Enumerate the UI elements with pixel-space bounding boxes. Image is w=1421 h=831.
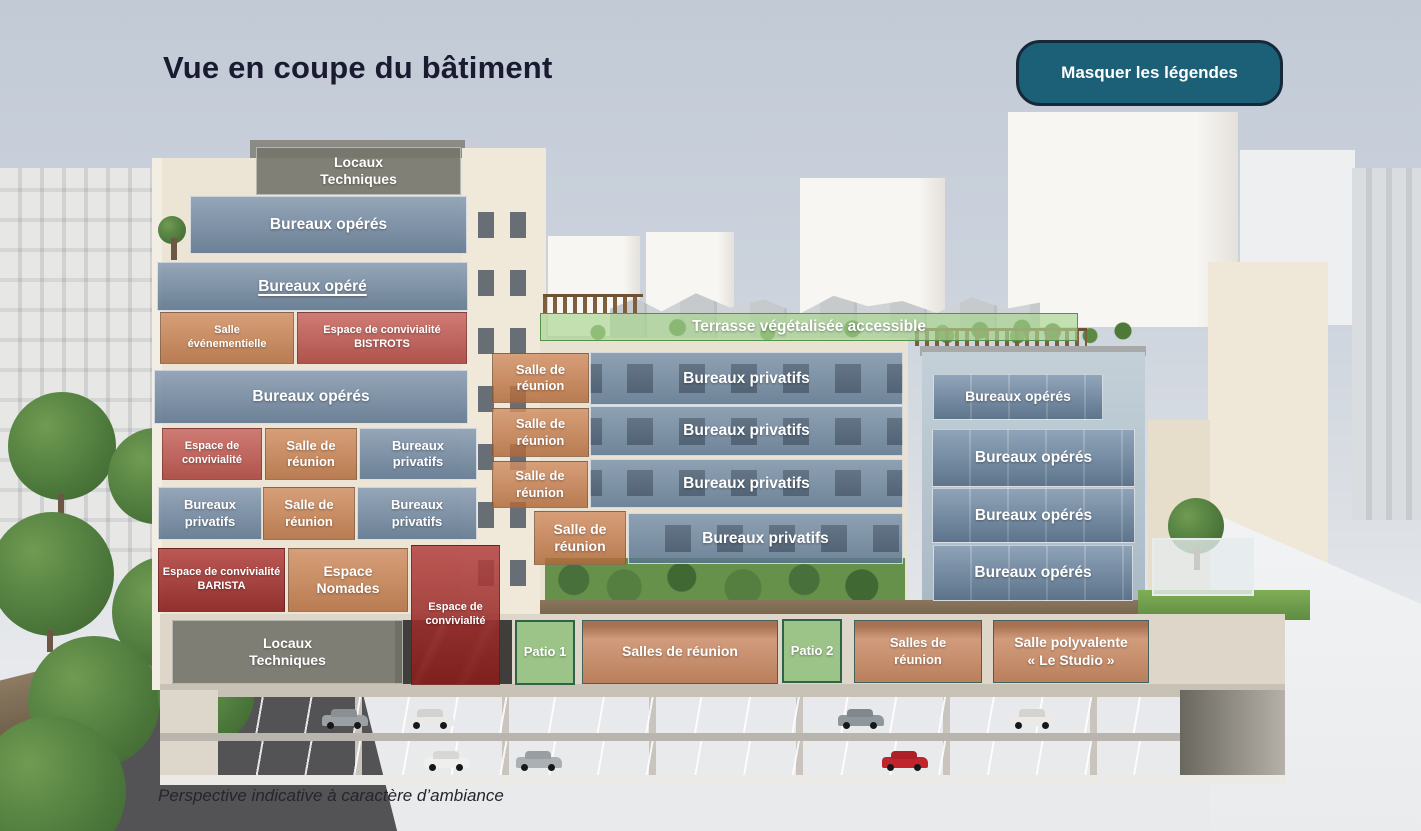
zone-bureaux-privatifs[interactable]: Bureaux privatifs <box>158 487 262 540</box>
zone-bureaux-operes[interactable]: Bureaux opérés <box>932 488 1135 543</box>
zone-espace-convivialite-barista[interactable]: Espace de convivialité BARISTA <box>158 548 285 612</box>
zone-salle-reunion[interactable]: Salle de réunion <box>263 487 355 540</box>
zone-locaux-techniques-rdc[interactable]: Locaux Techniques <box>172 620 403 684</box>
zone-bureaux-privatifs[interactable]: Bureaux privatifs <box>590 406 903 456</box>
roof-plant <box>158 216 186 244</box>
zone-bureaux-operes[interactable]: Bureaux opérés <box>932 429 1135 487</box>
car-icon <box>516 757 562 768</box>
zone-patio-1[interactable]: Patio 1 <box>515 620 575 685</box>
parking-right-wall <box>1180 690 1285 778</box>
zone-bureaux-operes[interactable]: Bureaux opérés <box>933 545 1133 601</box>
car-icon <box>838 715 884 726</box>
courtyard-garden <box>545 558 905 606</box>
zone-salle-reunion[interactable]: Salle de réunion <box>492 461 588 508</box>
page-title: Vue en coupe du bâtiment <box>163 50 552 86</box>
zone-salle-reunion[interactable]: Salle de réunion <box>265 428 357 480</box>
zone-bureaux-privatifs[interactable]: Bureaux privatifs <box>357 487 477 540</box>
car-icon <box>322 715 368 726</box>
glass-pavilion <box>1152 538 1254 596</box>
zone-salle-reunion[interactable]: Salle de réunion <box>492 408 589 457</box>
zone-patio-2[interactable]: Patio 2 <box>782 619 842 683</box>
background-glass-building <box>1352 168 1421 520</box>
zone-salles-reunion-rdc[interactable]: Salles de réunion <box>582 620 778 684</box>
ground-slab <box>160 684 1285 697</box>
zone-espace-convivialite[interactable]: Espace de convivialité <box>162 428 262 480</box>
zone-bureaux-privatifs[interactable]: Bureaux privatifs <box>628 513 903 564</box>
tree <box>8 392 116 500</box>
car-icon <box>424 757 470 768</box>
zone-espace-nomades[interactable]: Espace Nomades <box>288 548 408 612</box>
background-building <box>1008 112 1238 327</box>
pergola <box>543 294 643 314</box>
zone-salles-reunion-rdc[interactable]: Salles de réunion <box>854 620 982 683</box>
zone-espace-convivialite-bistrots[interactable]: Espace de convivialité BISTROTS <box>297 312 467 364</box>
parking-slab <box>160 733 1285 741</box>
building-cross-section-view: Locaux Techniques Bureaux opérés Bureaux… <box>0 0 1421 831</box>
zone-locaux-techniques-roof[interactable]: Locaux Techniques <box>256 147 461 195</box>
foundation-slab <box>160 775 1285 785</box>
zone-bureaux-privatifs[interactable]: Bureaux privatifs <box>590 352 903 405</box>
car-icon <box>1010 715 1056 726</box>
parking-level-2 <box>215 741 1180 775</box>
zone-bureaux-privatifs[interactable]: Bureaux privatifs <box>590 459 903 508</box>
zone-salle-reunion[interactable]: Salle de réunion <box>492 353 589 403</box>
zone-bureaux-operes[interactable]: Bureaux opérés <box>190 196 467 254</box>
zone-bureaux-operes[interactable]: Bureaux opérés <box>154 370 468 424</box>
zone-bureaux-opere-link[interactable]: Bureaux opéré <box>157 262 468 311</box>
zone-salle-reunion[interactable]: Salle de réunion <box>534 511 626 565</box>
zone-salle-polyvalente-le-studio[interactable]: Salle polyvalente « Le Studio » <box>993 620 1149 683</box>
car-icon <box>882 757 928 768</box>
zone-salle-evenementielle[interactable]: Salle événementielle <box>160 312 294 364</box>
car-icon <box>408 715 454 726</box>
zone-terrasse-vegetalisee[interactable]: Terrasse végétalisée accessible <box>540 313 1078 341</box>
zone-bureaux-operes[interactable]: Bureaux opérés <box>933 374 1103 420</box>
tree <box>0 512 114 636</box>
zone-espace-convivialite-duplex[interactable]: Espace de convivialité <box>411 545 500 685</box>
hide-legends-button[interactable]: Masquer les légendes <box>1016 40 1283 106</box>
zone-bureaux-privatifs[interactable]: Bureaux privatifs <box>359 428 477 480</box>
disclaimer-caption: Perspective indicative à caractère d’amb… <box>158 786 504 806</box>
